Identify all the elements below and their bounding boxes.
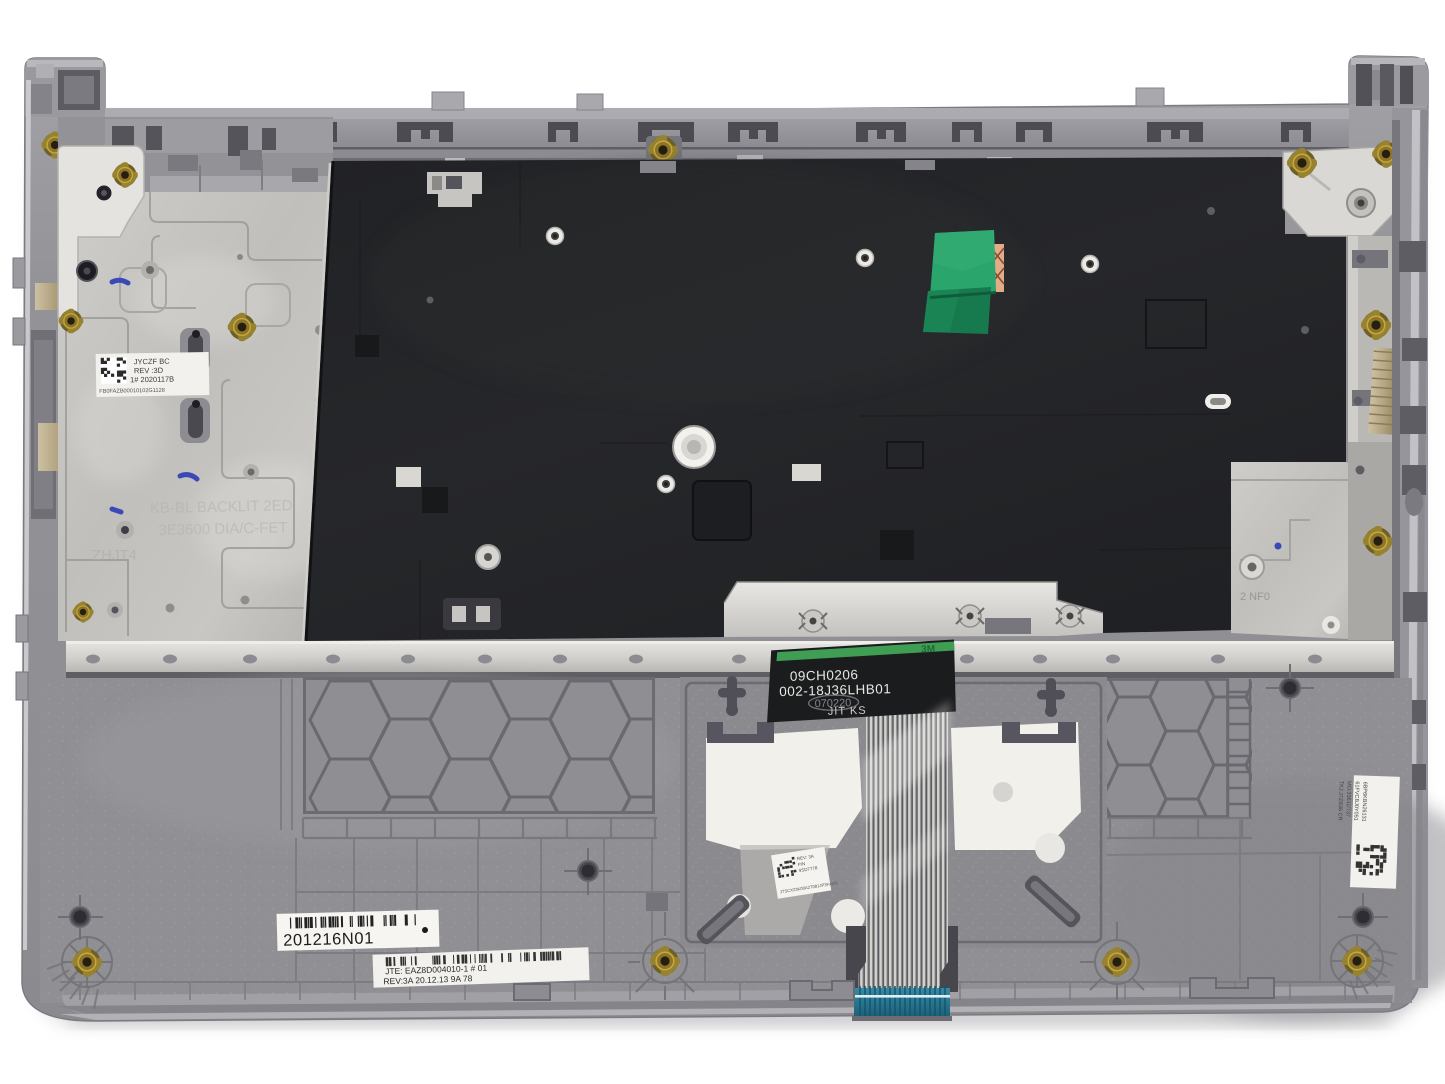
svg-text:3M: 3M [921, 644, 935, 655]
svg-text:2 NF0: 2 NF0 [1240, 591, 1270, 603]
svg-text:3E3600 DIA/C-FET: 3E3600 DIA/C-FET [158, 519, 288, 539]
svg-text:201216N01: 201216N01 [283, 929, 374, 949]
svg-text:ZHJT4: ZHJT4 [92, 547, 137, 564]
svg-text:09CH0206: 09CH0206 [790, 667, 859, 684]
svg-text:MO:33611/737: MO:33611/737 [1344, 781, 1351, 817]
svg-text:KB-BL BACKLIT 2ED: KB-BL BACKLIT 2ED [150, 497, 293, 517]
svg-text:1# 2020117B: 1# 2020117B [130, 375, 174, 385]
svg-text:FB0FAZB00010102G1128: FB0FAZB00010102G1128 [99, 388, 165, 395]
svg-text:JYCZF BC: JYCZF BC [134, 357, 171, 367]
svg-text:002-18J36LHB01: 002-18J36LHB01 [779, 681, 891, 699]
svg-text:REV :3D: REV :3D [134, 366, 164, 376]
svg-text:JIT KS: JIT KS [828, 705, 867, 718]
